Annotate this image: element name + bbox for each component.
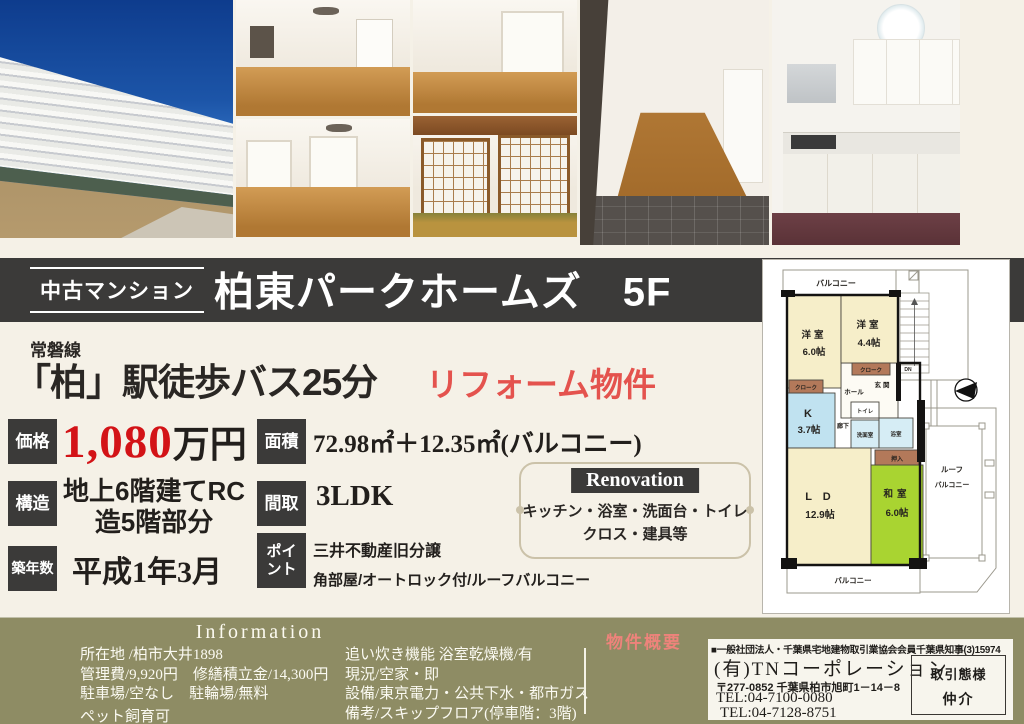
photo-western-room — [413, 0, 577, 113]
point-label-line1: ポイ — [266, 543, 296, 560]
floorplan-box: バルコニー 洋室 6.0帖 洋室 4.4帖 クローク クローク DN ホール 玄… — [762, 259, 1010, 614]
photo-hallway-entrance — [580, 0, 769, 245]
plan-ld-size: 12.9帖 — [805, 508, 834, 521]
plan-room1: 洋室 — [801, 329, 826, 341]
photo-decor — [246, 140, 292, 191]
age-label: 築年数 — [8, 546, 57, 591]
photo-decor — [498, 135, 570, 218]
plan-room1-size: 6.0帖 — [803, 346, 826, 358]
photo-decor — [853, 39, 960, 105]
property-type-badge: 中古マンション — [30, 267, 204, 313]
photo-decor — [421, 138, 489, 217]
info-line: ペット飼育可 — [80, 708, 328, 724]
plan-balcony-bottom: バルコニー — [834, 576, 871, 585]
plan-dn: DN — [904, 367, 912, 373]
plan-washroom: 洗面室 — [857, 431, 874, 439]
company-box: ■一般社団法人・千葉県宅地建物取引業協会会員千葉県知事(3)15974 (有)T… — [708, 639, 1013, 720]
renovation-heading: Renovation — [571, 468, 699, 493]
photo-decor — [236, 67, 410, 116]
info-left-column: 所在地 /柏市大井1898 管理費/9,920円 修繕積立金/14,300円 駐… — [80, 646, 328, 724]
price-unit: 万円 — [173, 414, 247, 468]
photo-decor — [413, 116, 577, 135]
photo-decor — [501, 11, 564, 81]
photo-decor — [580, 196, 769, 245]
photo-living-room — [236, 0, 410, 116]
info-line: 所在地 /柏市大井1898 — [80, 646, 328, 666]
area-value: 72.98㎡＋12.35㎡(バルコニー) — [313, 424, 642, 460]
floorplan-svg: バルコニー 洋室 6.0帖 洋室 4.4帖 クローク クローク DN ホール 玄… — [763, 260, 1009, 613]
point-label-line2: ント — [266, 561, 296, 578]
plan-bath: 浴室 — [890, 430, 902, 438]
renovation-line1: キッチン・浴室・洗面台・トイレ — [521, 500, 749, 521]
point-line1: 三井不動産旧分譲 — [313, 537, 441, 561]
plan-oshiire: 押入 — [891, 455, 903, 463]
structure-line2: 造5階部分 — [58, 507, 250, 538]
structure-line1: 地上6階建てRC — [58, 476, 250, 507]
photo-decor — [783, 154, 960, 213]
price-label: 価格 — [8, 419, 57, 464]
photo-decor — [309, 136, 358, 194]
age-value: 平成1年3月 — [72, 547, 222, 591]
photo-living-room-2 — [236, 119, 410, 237]
price-number: 1,080 — [62, 415, 173, 469]
info-line: 駐車場/空なし 駐輪場/無料 — [80, 685, 328, 705]
photo-kitchen — [772, 0, 960, 245]
deal-type-label: 取引態様 — [912, 664, 1005, 683]
plan-corridor: 廊下 — [837, 422, 849, 430]
plan-washitsu: 和室 — [882, 488, 910, 500]
layout-label: 間取 — [257, 481, 306, 526]
area-label: 面積 — [257, 419, 306, 464]
building-title: 柏東パークホームズ 5F — [214, 259, 671, 317]
plan-kitchen-size: 3.7帖 — [798, 424, 821, 436]
photo-decor — [772, 213, 960, 245]
renovation-box: Renovation キッチン・浴室・洗面台・トイレ クロス・建具等 — [519, 462, 751, 559]
point-label: ポイ ント — [257, 533, 306, 588]
plan-hall: ホール — [844, 388, 864, 396]
plan-kitchen: K — [804, 408, 812, 420]
plan-cloak2: クローク — [795, 384, 817, 392]
plan-roof-balcony2: バルコニー — [935, 481, 970, 489]
plan-ld: L D — [805, 491, 835, 503]
photo-decor — [326, 124, 352, 132]
plan-toilet: トイレ — [857, 408, 874, 415]
plan-room2: 洋室 — [856, 319, 881, 331]
photo-building-exterior — [0, 0, 233, 238]
reform-catch-copy: リフォーム物件 — [426, 358, 656, 406]
photo-decor — [787, 64, 836, 103]
structure-value: 地上6階建てRC 造5階部分 — [58, 476, 250, 538]
photo-decor — [313, 7, 339, 15]
photo-decor — [413, 72, 577, 113]
plan-genkan: 玄関 — [875, 380, 892, 389]
plan-cloak1: クローク — [860, 366, 882, 374]
company-tel2: TEL:04-7128-8751 — [720, 705, 837, 722]
plan-washitsu-size: 6.0帖 — [886, 507, 909, 519]
layout-value: 3LDK — [316, 480, 393, 513]
photo-decor — [356, 19, 393, 70]
photo-decor — [791, 135, 836, 150]
photo-decor — [413, 213, 577, 237]
info-line: 管理費/9,920円 修繕積立金/14,300円 — [80, 666, 328, 686]
photo-decor — [250, 26, 274, 58]
info-line: 設備/東京電力・公共下水・都市ガス — [345, 685, 589, 705]
plan-balcony-top: バルコニー — [816, 279, 856, 288]
vertical-divider — [584, 648, 586, 714]
deal-type-value: 仲介 — [912, 689, 1005, 709]
photo-decor — [236, 187, 410, 237]
point-line2: 角部屋/オートロック付/ルーフバルコニー — [313, 569, 590, 590]
price-value: 1,080 万円 — [62, 414, 247, 469]
structure-label: 構造 — [8, 481, 57, 526]
deal-type-box: 取引態様 仲介 — [911, 655, 1006, 715]
information-bar: Information 所在地 /柏市大井1898 管理費/9,920円 修繕積… — [0, 617, 1024, 724]
access-catch-copy: 「柏」駅徒歩バス25分 — [14, 352, 377, 406]
plan-room2-size: 4.4帖 — [858, 337, 881, 349]
info-line: 備考/スキップフロア(停車階：3階) — [345, 705, 589, 724]
renovation-line2: クロス・建具等 — [521, 523, 749, 544]
info-line: 現況/空家・即 — [345, 666, 589, 686]
info-middle-column: 追い炊き機能 浴室乾燥機/有 現況/空家・即 設備/東京電力・公共下水・都市ガス… — [345, 646, 589, 724]
info-line: 追い炊き機能 浴室乾燥機/有 — [345, 646, 589, 666]
information-heading: Information — [0, 621, 520, 644]
photo-japanese-room — [413, 116, 577, 237]
flyer-page: 中古マンション 柏東パークホームズ 5F 常磐線 「柏」駅徒歩バス25分 リフォ… — [0, 0, 1024, 724]
plan-roof-balcony1: ルーフ — [941, 465, 963, 474]
property-overview-label: 物件概要 — [606, 628, 682, 653]
